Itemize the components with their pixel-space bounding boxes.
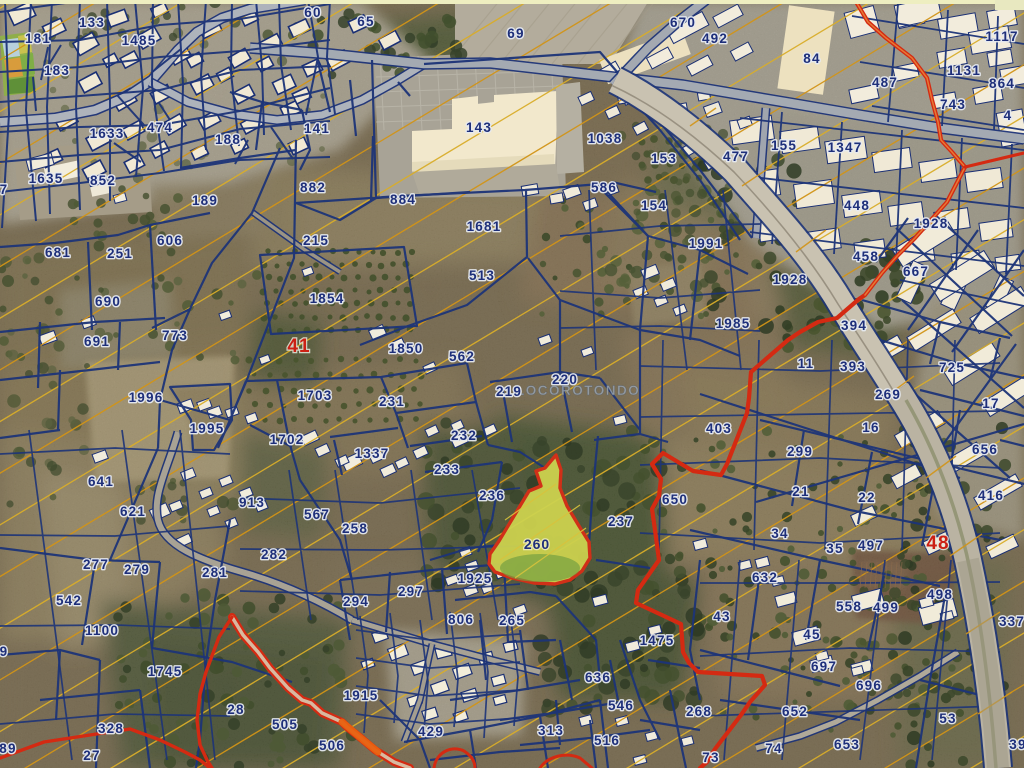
svg-text:690: 690 bbox=[95, 294, 121, 309]
svg-text:681: 681 bbox=[45, 245, 71, 260]
svg-text:1337: 1337 bbox=[355, 446, 390, 461]
svg-text:1985: 1985 bbox=[716, 316, 751, 331]
svg-text:393: 393 bbox=[840, 359, 866, 374]
svg-text:403: 403 bbox=[706, 421, 732, 436]
svg-text:9: 9 bbox=[0, 644, 8, 659]
svg-text:188: 188 bbox=[215, 132, 241, 147]
svg-text:1854: 1854 bbox=[310, 291, 345, 306]
svg-text:141: 141 bbox=[304, 121, 330, 136]
svg-text:268: 268 bbox=[686, 704, 712, 719]
svg-text:181: 181 bbox=[25, 31, 51, 46]
svg-text:215: 215 bbox=[303, 233, 329, 248]
svg-text:69: 69 bbox=[507, 26, 524, 41]
svg-text:546: 546 bbox=[608, 698, 634, 713]
svg-text:558: 558 bbox=[836, 599, 862, 614]
svg-text:652: 652 bbox=[782, 704, 808, 719]
svg-text:474: 474 bbox=[147, 120, 173, 135]
svg-text:281: 281 bbox=[202, 565, 228, 580]
svg-text:1702: 1702 bbox=[270, 432, 305, 447]
svg-text:743: 743 bbox=[940, 97, 966, 112]
svg-text:265: 265 bbox=[499, 613, 525, 628]
svg-text:773: 773 bbox=[162, 328, 188, 343]
svg-text:74: 74 bbox=[765, 741, 782, 756]
svg-text:41: 41 bbox=[287, 336, 310, 357]
svg-text:667: 667 bbox=[903, 264, 929, 279]
svg-text:48: 48 bbox=[926, 533, 949, 554]
svg-text:45: 45 bbox=[803, 627, 820, 642]
svg-text:513: 513 bbox=[469, 268, 495, 283]
svg-text:220: 220 bbox=[552, 372, 578, 387]
svg-text:567: 567 bbox=[304, 507, 330, 522]
svg-text:499: 499 bbox=[873, 600, 899, 615]
svg-text:1745: 1745 bbox=[148, 664, 183, 679]
svg-text:16: 16 bbox=[862, 420, 879, 435]
svg-text:650: 650 bbox=[662, 492, 688, 507]
svg-text:691: 691 bbox=[84, 334, 110, 349]
svg-text:1703: 1703 bbox=[298, 388, 333, 403]
svg-text:277: 277 bbox=[83, 557, 109, 572]
svg-text:60: 60 bbox=[304, 5, 321, 20]
svg-text:237: 237 bbox=[608, 514, 634, 529]
svg-text:35: 35 bbox=[826, 541, 843, 556]
svg-text:1996: 1996 bbox=[129, 390, 164, 405]
svg-text:429: 429 bbox=[418, 724, 444, 739]
svg-text:632: 632 bbox=[752, 570, 778, 585]
svg-text:21: 21 bbox=[792, 484, 809, 499]
svg-text:852: 852 bbox=[90, 173, 116, 188]
svg-text:233: 233 bbox=[434, 462, 460, 477]
svg-text:154: 154 bbox=[641, 198, 667, 213]
svg-text:394: 394 bbox=[841, 318, 867, 333]
svg-text:516: 516 bbox=[594, 733, 620, 748]
svg-text:884: 884 bbox=[390, 192, 416, 207]
svg-text:LOCOROTONDO: LOCOROTONDO bbox=[516, 383, 640, 398]
svg-text:43: 43 bbox=[713, 609, 730, 624]
svg-text:294: 294 bbox=[343, 594, 369, 609]
svg-text:84: 84 bbox=[803, 51, 820, 66]
svg-text:260: 260 bbox=[524, 536, 550, 552]
svg-text:477: 477 bbox=[723, 149, 749, 164]
svg-text:231: 231 bbox=[379, 394, 405, 409]
svg-text:656: 656 bbox=[972, 442, 998, 457]
svg-text:183: 183 bbox=[44, 63, 70, 78]
svg-text:258: 258 bbox=[342, 521, 368, 536]
svg-text:313: 313 bbox=[538, 723, 564, 738]
svg-text:641: 641 bbox=[88, 474, 114, 489]
svg-text:1347: 1347 bbox=[828, 140, 863, 155]
svg-text:236: 236 bbox=[479, 488, 505, 503]
svg-text:1633: 1633 bbox=[90, 126, 125, 141]
svg-text:22: 22 bbox=[858, 490, 875, 505]
svg-text:297: 297 bbox=[398, 584, 424, 599]
svg-text:696: 696 bbox=[856, 678, 882, 693]
svg-text:697: 697 bbox=[811, 659, 837, 674]
svg-text:7: 7 bbox=[0, 182, 8, 197]
svg-text:299: 299 bbox=[787, 444, 813, 459]
svg-text:39: 39 bbox=[1009, 737, 1024, 752]
svg-text:282: 282 bbox=[261, 547, 287, 562]
svg-text:1117: 1117 bbox=[985, 29, 1018, 44]
svg-text:269: 269 bbox=[875, 387, 901, 402]
svg-text:11: 11 bbox=[798, 356, 815, 371]
svg-text:17: 17 bbox=[982, 396, 999, 411]
svg-text:34: 34 bbox=[771, 526, 788, 541]
svg-text:498: 498 bbox=[927, 587, 953, 602]
svg-text:1485: 1485 bbox=[122, 33, 157, 48]
svg-text:27: 27 bbox=[83, 748, 100, 763]
svg-text:1100: 1100 bbox=[85, 623, 119, 638]
svg-text:53: 53 bbox=[939, 711, 956, 726]
svg-text:133: 133 bbox=[79, 15, 105, 30]
svg-text:606: 606 bbox=[157, 233, 183, 248]
svg-text:487: 487 bbox=[872, 75, 898, 90]
svg-text:337: 337 bbox=[999, 614, 1024, 629]
svg-text:328: 328 bbox=[98, 721, 124, 736]
svg-text:1635: 1635 bbox=[29, 171, 64, 186]
svg-text:505: 505 bbox=[272, 717, 298, 732]
svg-text:913: 913 bbox=[239, 495, 265, 510]
svg-text:725: 725 bbox=[939, 360, 965, 375]
svg-text:143: 143 bbox=[466, 120, 492, 135]
svg-text:542: 542 bbox=[56, 593, 82, 608]
svg-text:497: 497 bbox=[858, 538, 884, 553]
svg-text:492: 492 bbox=[702, 31, 728, 46]
svg-text:562: 562 bbox=[449, 349, 475, 364]
svg-text:653: 653 bbox=[834, 737, 860, 752]
svg-text:1038: 1038 bbox=[588, 131, 623, 146]
svg-text:89: 89 bbox=[0, 741, 17, 756]
svg-text:1681: 1681 bbox=[467, 219, 502, 234]
svg-text:4: 4 bbox=[1004, 108, 1013, 123]
svg-text:251: 251 bbox=[107, 246, 133, 261]
svg-text:28: 28 bbox=[227, 702, 244, 717]
svg-text:586: 586 bbox=[591, 180, 617, 195]
svg-text:279: 279 bbox=[124, 562, 150, 577]
svg-text:864: 864 bbox=[989, 76, 1015, 91]
svg-text:636: 636 bbox=[585, 670, 611, 685]
svg-text:621: 621 bbox=[120, 504, 146, 519]
svg-text:73: 73 bbox=[702, 750, 719, 765]
svg-text:448: 448 bbox=[844, 198, 870, 213]
svg-text:1928: 1928 bbox=[914, 216, 949, 231]
svg-text:670: 670 bbox=[670, 15, 696, 30]
svg-text:1850: 1850 bbox=[389, 341, 424, 356]
svg-text:189: 189 bbox=[192, 193, 218, 208]
svg-text:232: 232 bbox=[451, 428, 477, 443]
svg-text:882: 882 bbox=[300, 180, 326, 195]
svg-text:65: 65 bbox=[357, 14, 374, 29]
svg-text:506: 506 bbox=[319, 738, 345, 753]
svg-text:1995: 1995 bbox=[190, 421, 225, 436]
svg-text:1928: 1928 bbox=[773, 272, 808, 287]
svg-text:1475: 1475 bbox=[640, 633, 675, 648]
svg-text:806: 806 bbox=[448, 612, 474, 627]
svg-text:1131: 1131 bbox=[947, 63, 981, 78]
svg-text:1915: 1915 bbox=[344, 688, 379, 703]
svg-text:416: 416 bbox=[978, 488, 1004, 503]
svg-text:1925: 1925 bbox=[458, 571, 493, 586]
svg-text:219: 219 bbox=[496, 384, 522, 399]
svg-text:155: 155 bbox=[771, 138, 797, 153]
svg-text:1991: 1991 bbox=[689, 236, 724, 251]
svg-text:153: 153 bbox=[651, 151, 677, 166]
svg-text:458: 458 bbox=[853, 249, 879, 264]
